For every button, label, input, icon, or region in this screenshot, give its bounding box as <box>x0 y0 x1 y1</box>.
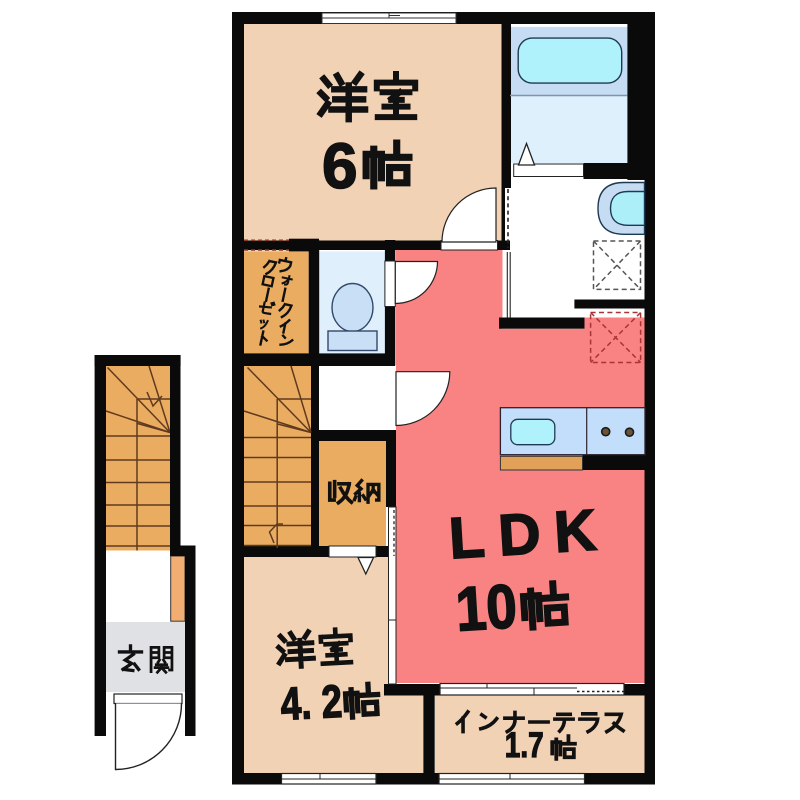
svg-text:6: 6 <box>322 130 358 202</box>
svg-text:10: 10 <box>454 572 519 645</box>
svg-text:LDK: LDK <box>447 497 612 572</box>
svg-text:1.7: 1.7 <box>505 725 544 765</box>
svg-text:4. 2: 4. 2 <box>279 675 343 730</box>
